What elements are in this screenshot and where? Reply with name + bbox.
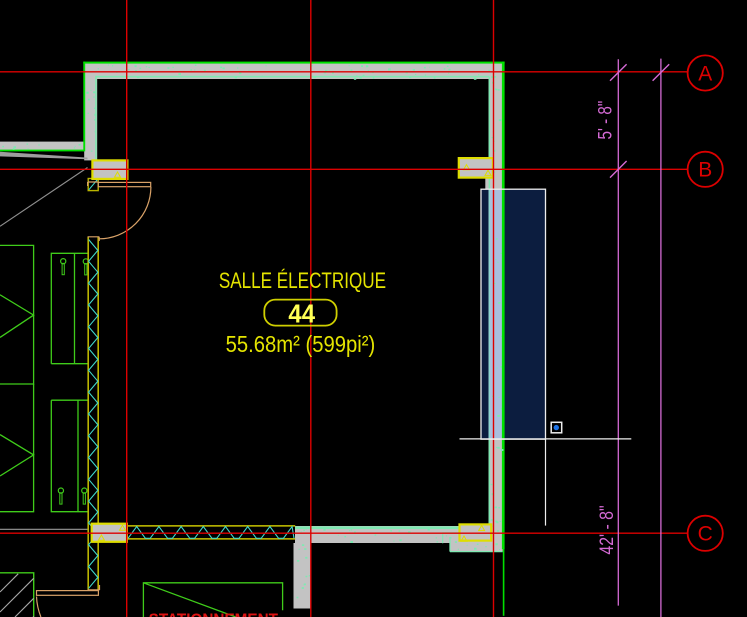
svg-text:5' - 8": 5' - 8" bbox=[594, 101, 616, 140]
svg-text:A: A bbox=[698, 62, 712, 85]
svg-text:C: C bbox=[698, 523, 713, 546]
svg-text:B: B bbox=[698, 159, 712, 182]
svg-text:STATIONNEMENT: STATIONNEMENT bbox=[149, 610, 278, 617]
svg-text:44: 44 bbox=[288, 300, 315, 329]
svg-text:42' - 8": 42' - 8" bbox=[596, 505, 618, 554]
svg-text:SALLE ÉLECTRIQUE: SALLE ÉLECTRIQUE bbox=[219, 268, 386, 294]
svg-text:55.68m² (599pi²): 55.68m² (599pi²) bbox=[226, 331, 376, 358]
